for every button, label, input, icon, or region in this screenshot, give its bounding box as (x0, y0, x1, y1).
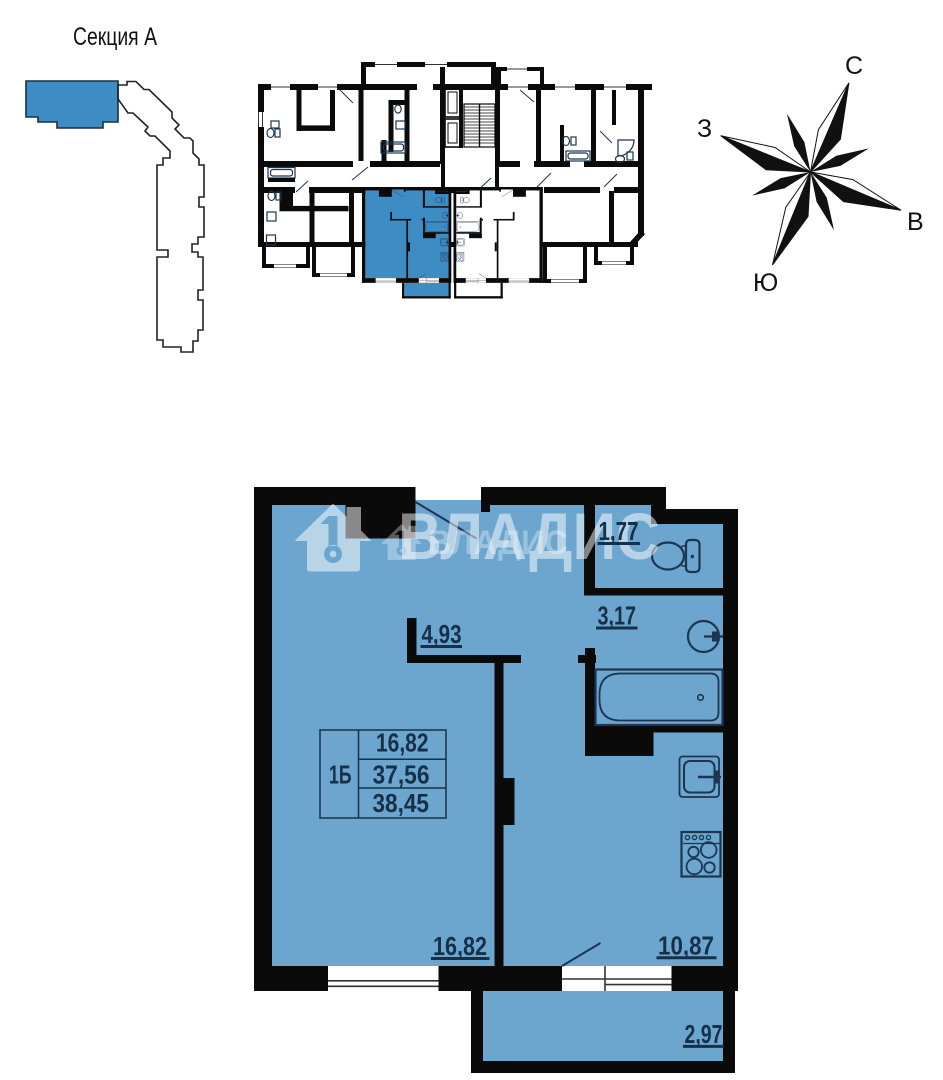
svg-text:З: З (697, 115, 712, 143)
svg-text:1,77: 1,77 (599, 516, 639, 546)
svg-text:С: С (845, 52, 863, 80)
svg-text:4,93: 4,93 (422, 619, 462, 649)
svg-text:38,45: 38,45 (373, 788, 430, 818)
svg-text:10,87: 10,87 (658, 930, 714, 960)
svg-text:3,17: 3,17 (598, 601, 637, 631)
svg-text:16,82: 16,82 (376, 728, 429, 758)
svg-text:1Б: 1Б (329, 760, 352, 790)
svg-text:37,56: 37,56 (373, 760, 430, 790)
svg-text:2,97: 2,97 (685, 1019, 723, 1049)
svg-text:16,82: 16,82 (433, 931, 487, 961)
svg-text:Ю: Ю (753, 269, 778, 297)
svg-text:В: В (907, 208, 924, 236)
svg-text:Секция А: Секция А (73, 23, 157, 51)
